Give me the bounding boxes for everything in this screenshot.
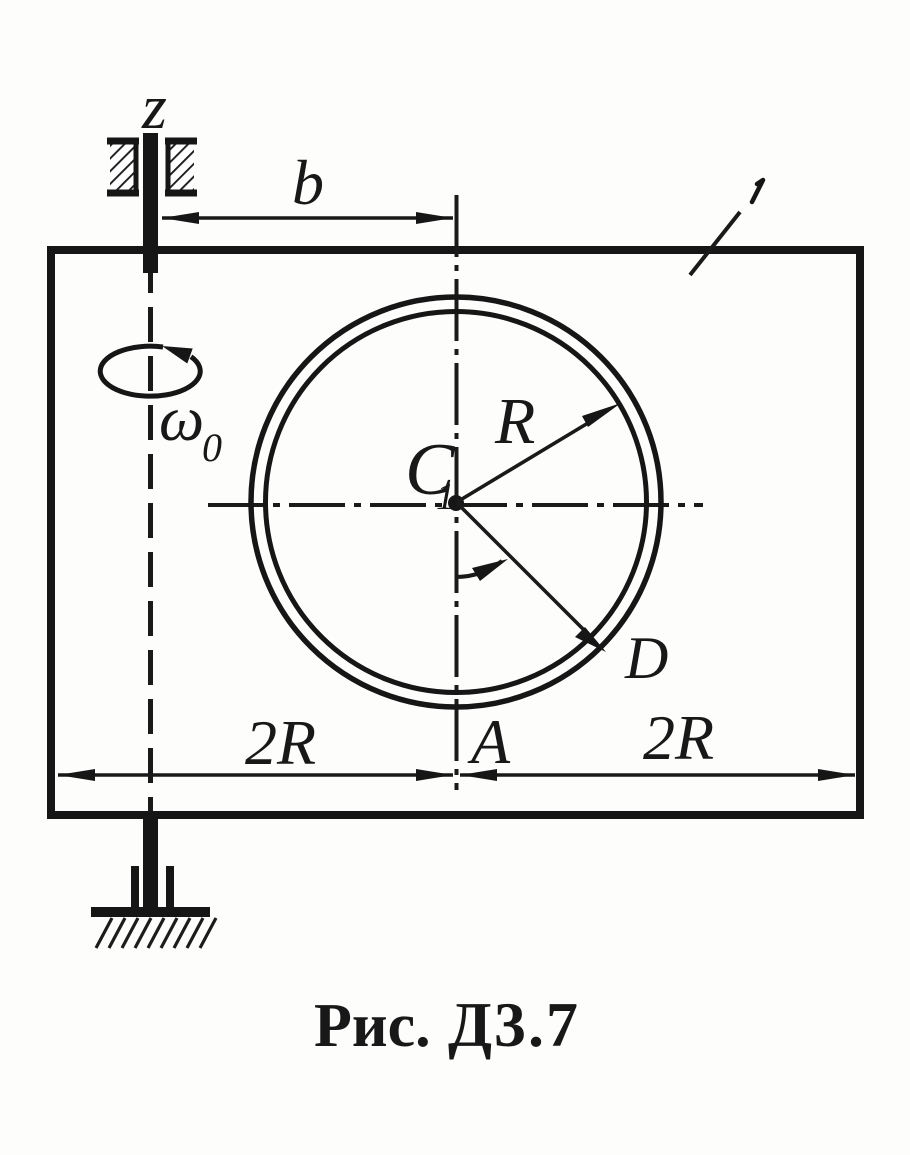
svg-text:Рис.: Рис. xyxy=(314,992,431,1060)
svg-text:Д3.7: Д3.7 xyxy=(448,989,580,1060)
svg-text:A: A xyxy=(467,706,511,777)
svg-text:b: b xyxy=(292,147,324,218)
svg-text:R: R xyxy=(494,385,535,458)
svg-text:1: 1 xyxy=(436,476,455,518)
svg-text:2R: 2R xyxy=(245,707,316,778)
svg-text:0: 0 xyxy=(202,425,222,470)
svg-text:D: D xyxy=(624,625,668,691)
svg-text:ω: ω xyxy=(159,383,204,454)
svg-text:z: z xyxy=(141,71,167,142)
svg-text:2R: 2R xyxy=(643,702,714,773)
